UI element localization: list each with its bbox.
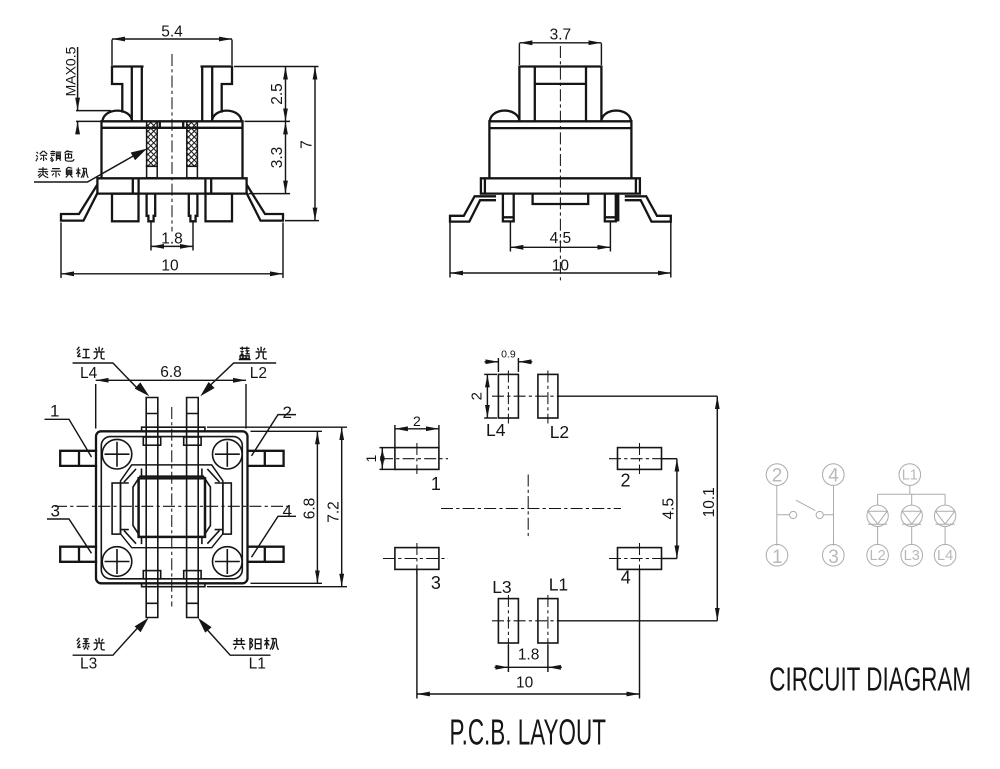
- svg-text:L2: L2: [250, 365, 267, 382]
- svg-text:L4: L4: [486, 420, 506, 440]
- svg-text:6.8: 6.8: [160, 364, 182, 381]
- svg-text:4: 4: [621, 568, 631, 588]
- svg-text:L2: L2: [870, 548, 886, 564]
- svg-text:L1: L1: [902, 468, 918, 484]
- svg-text:L2: L2: [550, 422, 569, 442]
- svg-text:CIRCUIT DIAGRAM: CIRCUIT DIAGRAM: [769, 660, 971, 697]
- svg-text:7: 7: [299, 140, 316, 149]
- svg-text:3: 3: [51, 502, 60, 521]
- svg-text:2: 2: [772, 466, 783, 487]
- svg-text:1.8: 1.8: [161, 230, 183, 247]
- svg-text:1: 1: [772, 547, 783, 568]
- svg-text:MAX0.5: MAX0.5: [63, 46, 79, 96]
- svg-text:3.7: 3.7: [550, 27, 572, 44]
- svg-text:2: 2: [469, 392, 486, 400]
- svg-text:2: 2: [413, 413, 421, 429]
- svg-text:L4: L4: [937, 548, 953, 564]
- svg-text:2: 2: [620, 471, 630, 491]
- svg-text:10: 10: [516, 674, 534, 691]
- svg-text:L1: L1: [249, 655, 266, 672]
- svg-text:2: 2: [283, 403, 292, 422]
- svg-text:L3: L3: [904, 548, 920, 564]
- svg-text:2.5: 2.5: [269, 83, 286, 105]
- svg-text:3: 3: [431, 573, 441, 593]
- svg-text:5.4: 5.4: [161, 23, 183, 40]
- svg-text:1: 1: [431, 474, 441, 494]
- svg-text:3.3: 3.3: [269, 147, 286, 169]
- svg-text:10: 10: [161, 257, 179, 274]
- svg-text:7.2: 7.2: [326, 501, 343, 523]
- svg-text:6.8: 6.8: [302, 498, 319, 520]
- svg-text:1: 1: [50, 402, 59, 421]
- svg-text:0.9: 0.9: [501, 348, 516, 360]
- svg-text:1.8: 1.8: [518, 647, 540, 664]
- svg-text:L4: L4: [80, 365, 98, 382]
- svg-text:3: 3: [828, 547, 839, 568]
- svg-text:4.5: 4.5: [550, 230, 572, 247]
- svg-text:10: 10: [552, 257, 570, 274]
- svg-text:L3: L3: [492, 577, 511, 597]
- svg-text:10.1: 10.1: [701, 487, 718, 517]
- svg-text:1: 1: [363, 454, 379, 462]
- svg-text:4: 4: [283, 502, 292, 521]
- svg-text:L3: L3: [80, 655, 97, 672]
- svg-text:P.C.B. LAYOUT: P.C.B. LAYOUT: [450, 713, 606, 753]
- svg-text:L1: L1: [549, 575, 568, 595]
- svg-text:4.5: 4.5: [661, 498, 678, 520]
- svg-text:4: 4: [828, 466, 839, 487]
